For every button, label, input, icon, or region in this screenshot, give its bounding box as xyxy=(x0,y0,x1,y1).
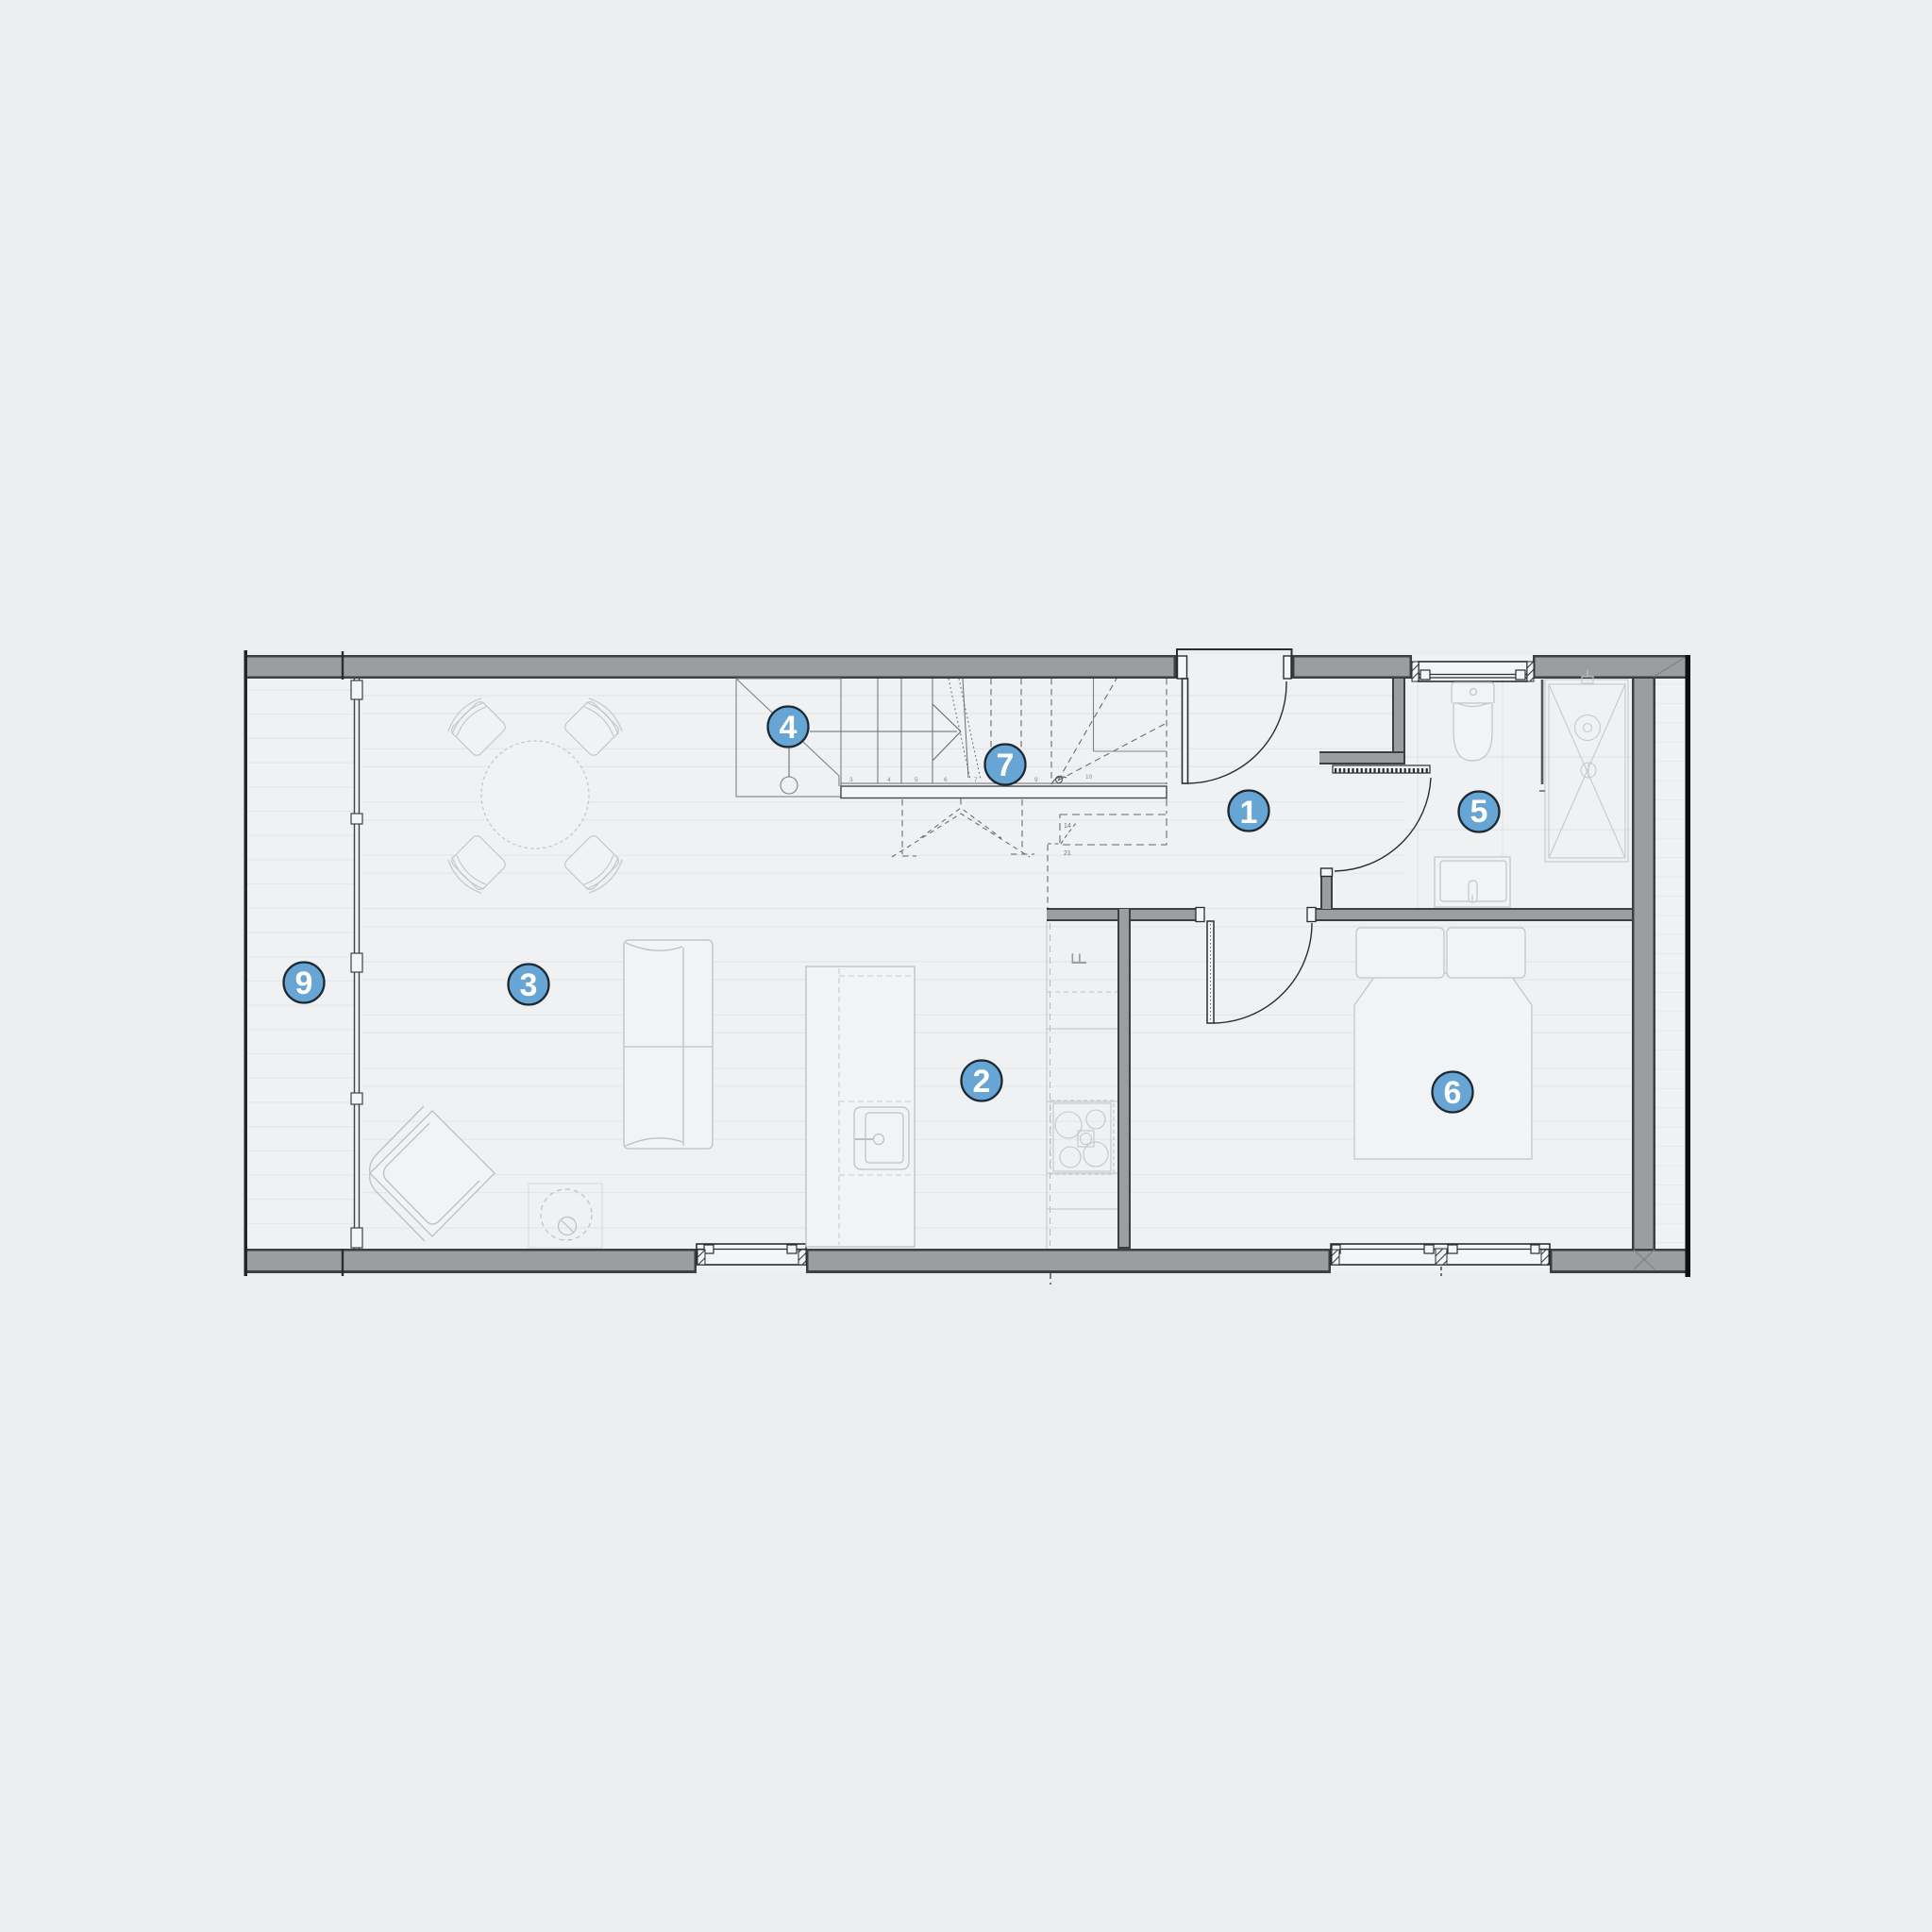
svg-text:4: 4 xyxy=(887,777,891,783)
svg-text:3: 3 xyxy=(849,777,853,783)
svg-text:1: 1 xyxy=(1240,795,1258,831)
svg-text:9: 9 xyxy=(295,966,313,1001)
svg-text:6: 6 xyxy=(944,777,948,783)
svg-text:5: 5 xyxy=(1470,794,1488,830)
svg-text:6: 6 xyxy=(1444,1075,1462,1111)
svg-text:14: 14 xyxy=(1064,823,1071,830)
svg-text:5: 5 xyxy=(915,777,918,783)
svg-text:7: 7 xyxy=(997,748,1015,783)
svg-text:21: 21 xyxy=(1064,850,1071,857)
svg-text:10: 10 xyxy=(1085,774,1093,781)
svg-text:2: 2 xyxy=(973,1064,991,1100)
svg-text:7: 7 xyxy=(974,777,978,783)
svg-text:3: 3 xyxy=(520,967,538,1003)
svg-text:4: 4 xyxy=(780,710,798,746)
svg-text:F: F xyxy=(1067,952,1091,965)
svg-text:9: 9 xyxy=(1034,777,1038,783)
